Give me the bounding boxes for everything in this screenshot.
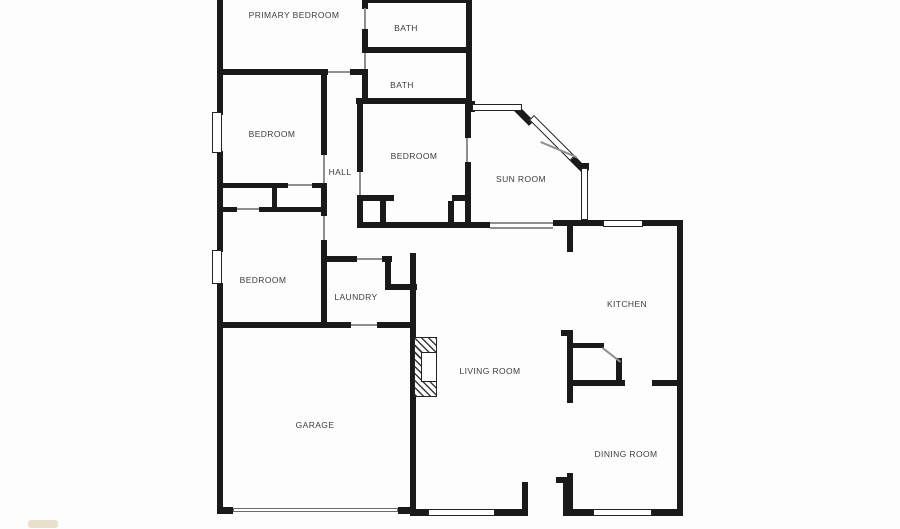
garage-door-0 xyxy=(233,508,398,512)
wall-segment-2 xyxy=(217,283,223,514)
wall-segment-9 xyxy=(366,47,467,53)
floor-plan: PRIMARY BEDROOMBATHBATHBEDROOMBEDROOMHAL… xyxy=(0,0,900,529)
wall-segment-17 xyxy=(448,201,454,223)
door-opening-line-13 xyxy=(602,347,621,363)
room-label-bath-1: BATH xyxy=(394,23,418,33)
wall-segment-4 xyxy=(217,69,328,75)
door-opening-line-8 xyxy=(466,138,468,162)
wall-segment-12 xyxy=(357,104,363,172)
door-opening-line-12 xyxy=(490,227,553,229)
wall-segment-22 xyxy=(220,207,237,212)
wall-segment-54 xyxy=(563,509,593,516)
window-6 xyxy=(428,509,495,516)
door-opening-line-3 xyxy=(288,184,312,186)
door-opening-line-2 xyxy=(364,53,366,69)
room-label-bedroom-1: BEDROOM xyxy=(249,129,296,139)
wall-segment-40 xyxy=(572,343,604,348)
wall-segment-8 xyxy=(362,69,368,101)
window-5 xyxy=(603,220,643,227)
wall-segment-18 xyxy=(321,74,327,155)
room-label-dining-room: DINING ROOM xyxy=(595,449,658,459)
door-opening-line-5 xyxy=(323,155,325,183)
wall-segment-36 xyxy=(553,220,603,226)
window-2 xyxy=(472,104,522,111)
wall-segment-10 xyxy=(466,0,472,104)
window-1 xyxy=(212,250,222,284)
wall-segment-42 xyxy=(572,380,625,386)
room-label-bedroom-3: BEDROOM xyxy=(240,275,287,285)
room-label-garage: GARAGE xyxy=(296,420,335,430)
wall-segment-0 xyxy=(217,0,223,115)
room-label-bath-2: BATH xyxy=(390,80,414,90)
door-opening-line-11 xyxy=(490,222,553,224)
fireplace-firebox-0 xyxy=(421,352,437,382)
wall-segment-1 xyxy=(217,151,223,252)
window-4 xyxy=(581,168,588,220)
wall-segment-38 xyxy=(567,226,573,252)
wall-segment-21 xyxy=(272,188,277,209)
wall-segment-52 xyxy=(522,482,528,516)
wall-segment-51 xyxy=(495,509,522,516)
wall-segment-39 xyxy=(677,220,683,515)
room-label-living-room: LIVING ROOM xyxy=(459,366,520,376)
wall-segment-19 xyxy=(220,183,288,188)
window-0 xyxy=(212,112,222,153)
door-opening-line-7 xyxy=(359,172,361,195)
room-label-hall: HALL xyxy=(329,167,352,177)
wall-segment-3 xyxy=(368,0,468,3)
room-label-primary-bedroom: PRIMARY BEDROOM xyxy=(249,10,340,20)
door-opening-line-9 xyxy=(357,258,382,260)
room-label-sun-room: SUN ROOM xyxy=(496,174,546,184)
wall-segment-14 xyxy=(357,195,394,201)
door-opening-line-4 xyxy=(237,208,259,210)
wall-segment-45 xyxy=(567,330,573,403)
room-label-kitchen: KITCHEN xyxy=(607,299,647,309)
wall-segment-56 xyxy=(398,507,416,514)
room-label-bedroom-2: BEDROOM xyxy=(391,151,438,161)
wall-segment-55 xyxy=(217,507,233,514)
door-opening-line-10 xyxy=(351,324,377,326)
wall-segment-28 xyxy=(325,256,357,262)
wall-segment-49 xyxy=(652,509,683,516)
wall-segment-34 xyxy=(465,162,471,222)
wall-segment-23 xyxy=(259,207,327,212)
door-opening-line-6 xyxy=(323,216,325,240)
wall-segment-35 xyxy=(357,222,490,228)
wall-segment-26 xyxy=(217,322,351,328)
wall-segment-11 xyxy=(356,98,470,104)
window-7 xyxy=(593,509,652,516)
watermark-0 xyxy=(28,520,58,528)
door-opening-line-0 xyxy=(328,71,350,73)
wall-segment-43 xyxy=(652,380,677,386)
wall-segment-25 xyxy=(321,240,327,328)
room-label-laundry: LAUNDRY xyxy=(334,292,377,302)
door-opening-line-1 xyxy=(364,8,366,29)
wall-segment-24 xyxy=(321,183,327,216)
